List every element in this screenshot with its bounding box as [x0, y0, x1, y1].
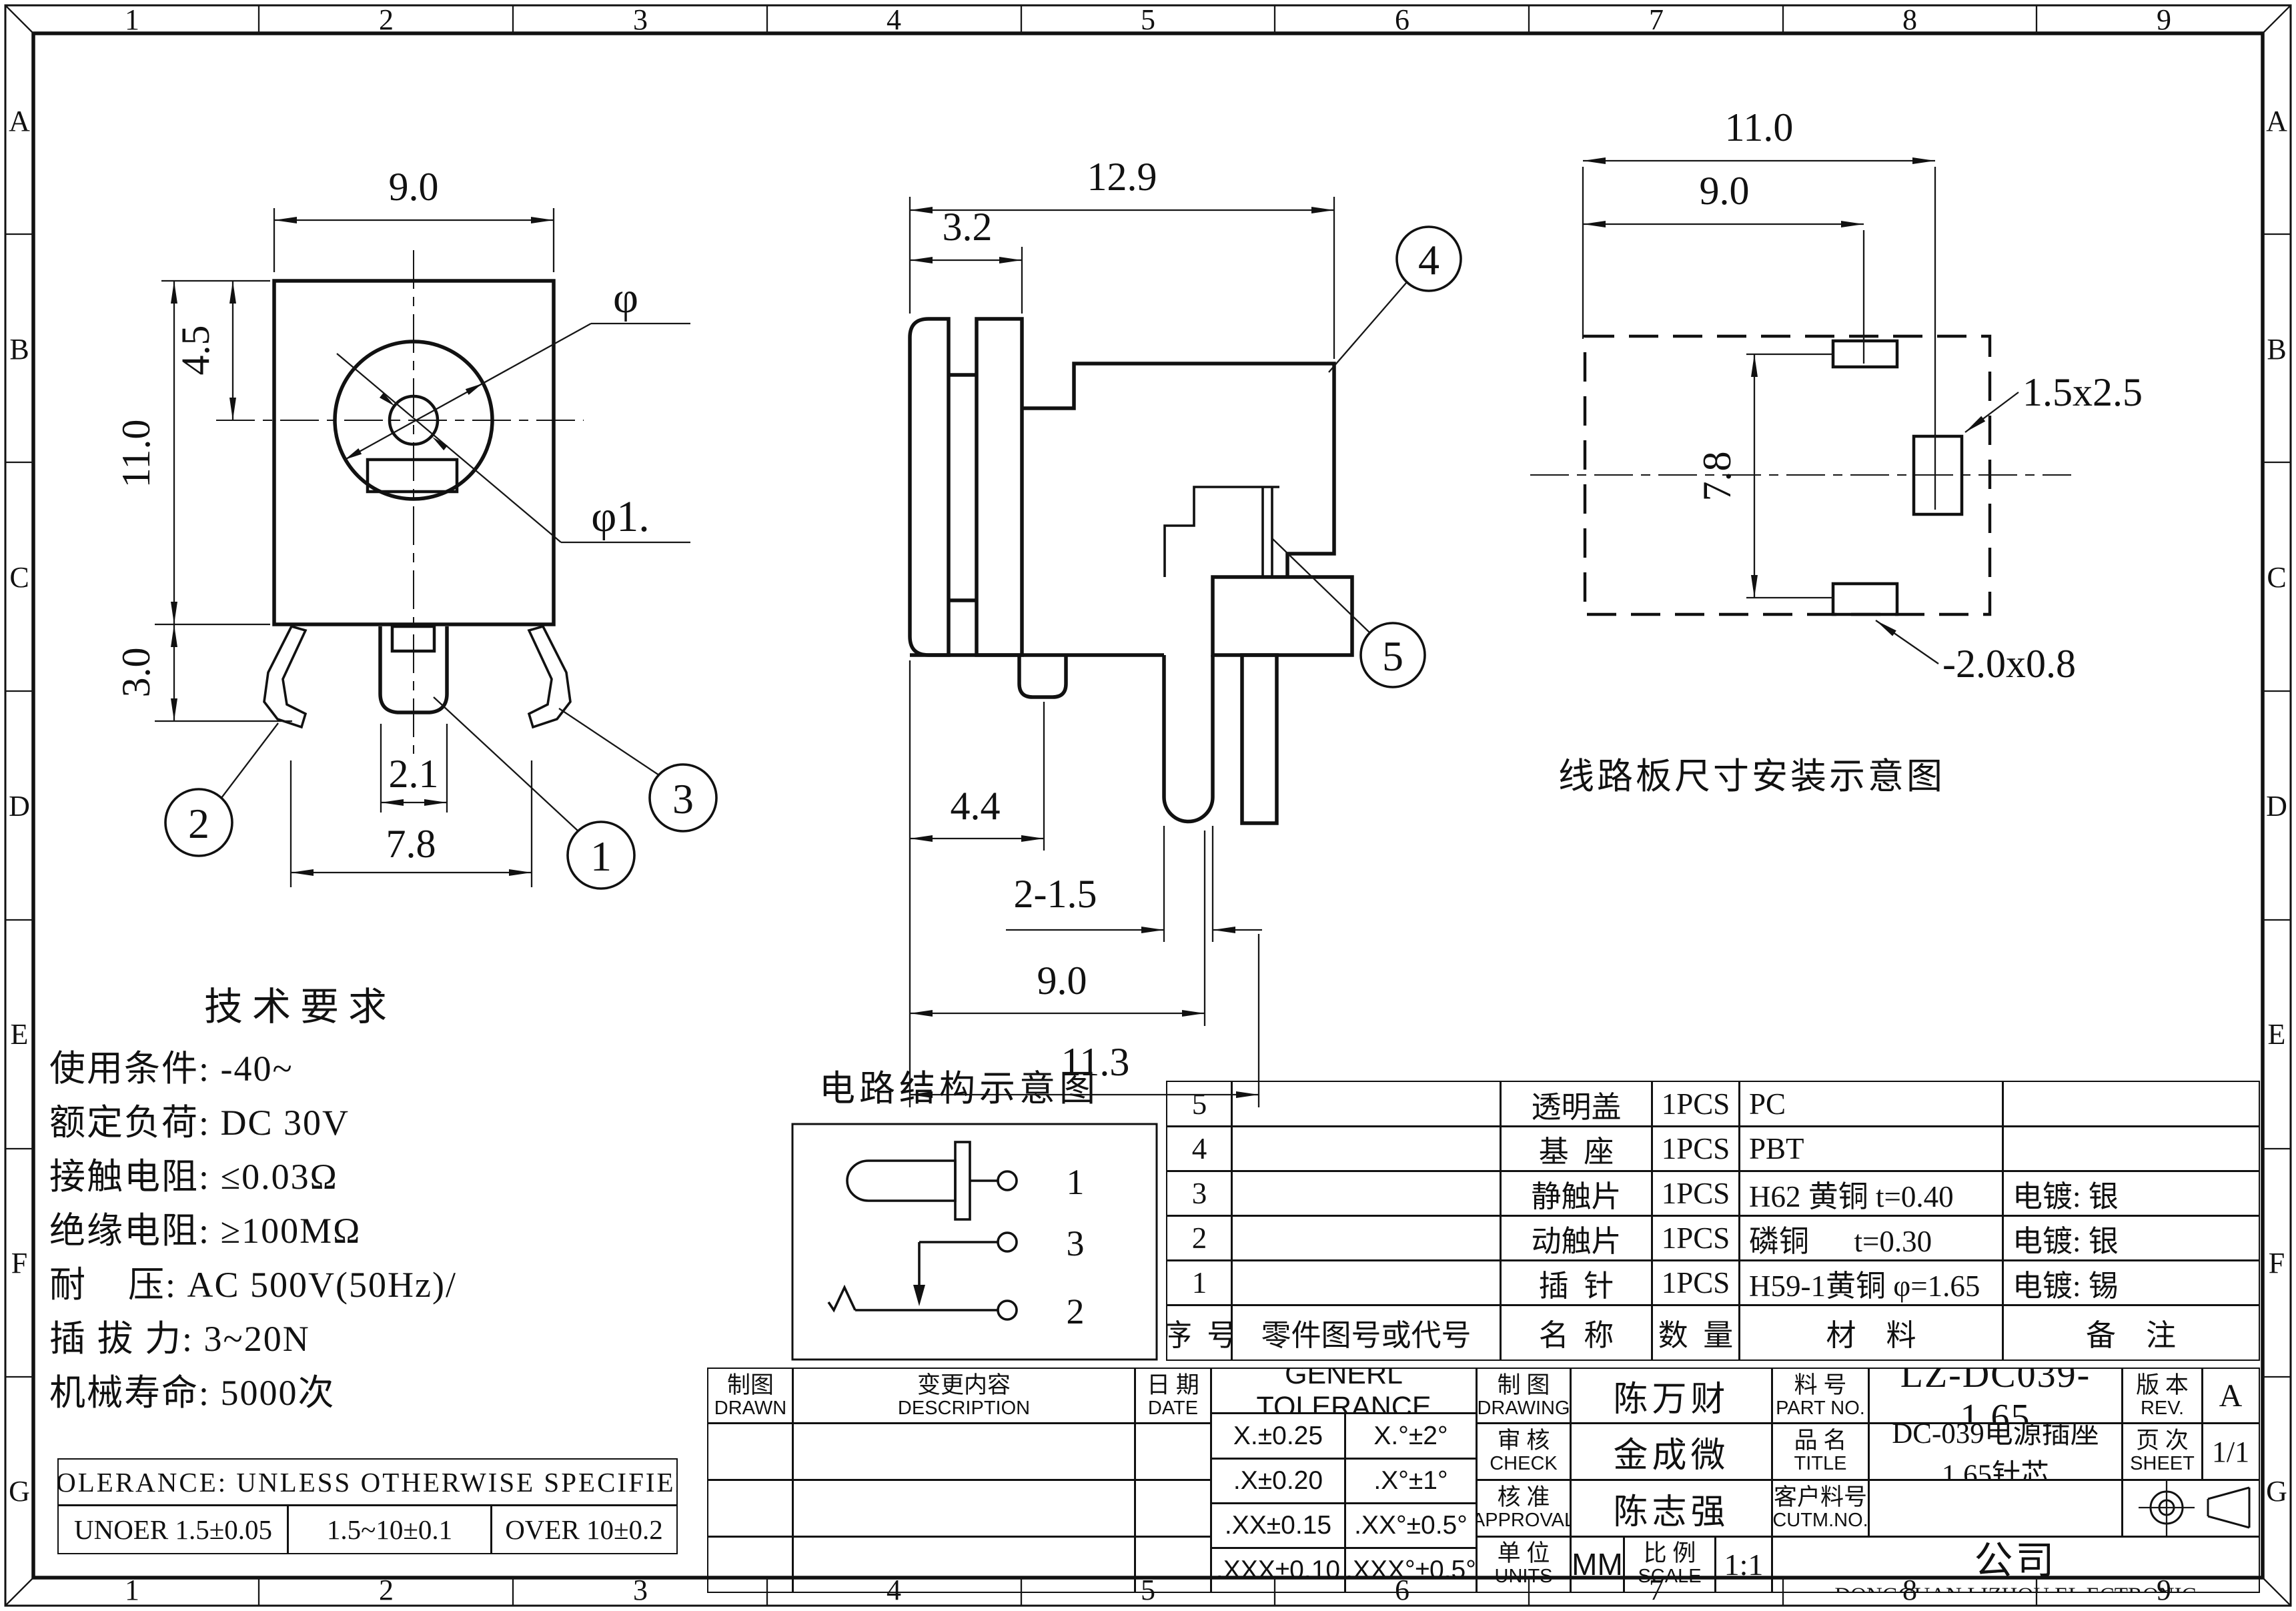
zone-row: A	[9, 105, 30, 137]
zone-row: E	[2268, 1018, 2286, 1051]
dim-front-height: 11.0	[114, 420, 158, 488]
customer-partno-label: 客户料号 CUTM.NO.	[1771, 1479, 1870, 1538]
scale-value: 1:1	[1714, 1536, 1773, 1593]
projection-symbol-cell	[2121, 1479, 2260, 1538]
drawn-label: 制图 DRAWN	[707, 1368, 794, 1424]
rev-label-en: REV.	[2141, 1398, 2184, 1419]
zone-row: C	[2267, 561, 2286, 594]
revision-cell	[1134, 1536, 1212, 1593]
drawing-sheet: 技术要求 使用条件: -40~ 额定负荷: DC 30V 接触电阻: ≤0.03…	[0, 0, 2296, 1611]
revision-cell	[707, 1536, 794, 1593]
company: 东莞市利洲电子科技有限公司 DONGGUAN LIZHOU EL ECTRONI…	[1771, 1536, 2260, 1593]
date-label: 日 期 DATE	[1134, 1368, 1212, 1424]
parts-qty: 1PCS	[1651, 1215, 1740, 1261]
zone-col: 8	[1902, 3, 1917, 36]
front-center-pin	[380, 626, 447, 712]
side-round-pin	[1164, 655, 1213, 822]
parts-name: 透明盖	[1500, 1081, 1653, 1127]
zone-col: 3	[633, 1574, 648, 1606]
front-dimensions: 9.0 4.5 11.0 3.0 2.1 7.8	[114, 165, 554, 887]
title-value: DC-039电源插座1.65针芯	[1868, 1422, 2123, 1481]
parts-material: PBT	[1738, 1125, 2004, 1172]
rev-label-cn: 版 本	[2136, 1373, 2189, 1398]
rev-label: 版 本 REV.	[2121, 1368, 2203, 1424]
parts-qty: 1PCS	[1651, 1081, 1740, 1127]
tolerance-value: X.±0.25	[1210, 1412, 1346, 1460]
check-label: 审 核 CHECK	[1476, 1422, 1572, 1481]
balloon-4: 4	[1418, 236, 1440, 284]
units-label: 单 位 UNITS	[1476, 1536, 1572, 1593]
front-balloons: 2 1 3	[165, 697, 716, 889]
rev-value: A	[2201, 1368, 2260, 1424]
tolerance-cell: 1.5~10±0.1	[287, 1504, 492, 1554]
drawing-label: 制 图 DRAWING	[1476, 1368, 1572, 1424]
sheet-label: 页 次 SHEET	[2121, 1422, 2203, 1481]
parts-header-note: 备 注	[2002, 1304, 2260, 1361]
circuit-title: 电路结构示意图	[819, 1069, 1099, 1109]
parts-no: 4	[1166, 1125, 1233, 1172]
tolerance-value: .XXX°±0.5°	[1344, 1547, 1478, 1593]
parts-note: 电镀: 银	[2002, 1170, 2260, 1217]
zone-col: 2	[379, 3, 394, 36]
general-tolerance-header: GENERL TOLERANCE	[1210, 1368, 1478, 1414]
parts-code	[1231, 1259, 1502, 1306]
parts-material: H59-1黄铜 φ=1.65	[1738, 1259, 2004, 1306]
zone-row: A	[2266, 105, 2287, 137]
revision-cell	[792, 1536, 1136, 1593]
zone-col: 2	[379, 1574, 394, 1606]
zone-col: 6	[1395, 3, 1409, 36]
tolerance-value: X.°±2°	[1344, 1412, 1478, 1460]
check-label-en: CHECK	[1490, 1454, 1558, 1474]
zone-col: 9	[2157, 3, 2171, 36]
zone-row: D	[2266, 790, 2287, 823]
label-phi: φ	[613, 274, 638, 322]
parts-name: 基 座	[1500, 1125, 1653, 1172]
tech-req-line: 插 拔 力: 3~20N	[49, 1309, 556, 1362]
tolerance-cell: UNOER 1.5±0.05	[57, 1504, 289, 1554]
dim-side-pins: 2-1.5	[1014, 872, 1097, 916]
pcb-right-slot	[1914, 436, 1962, 514]
pcb-dimensions: 11.0 9.0 7.8 1.5x2.5 -2.0x0.8	[1583, 105, 2143, 686]
circuit-diagram: 电路结构示意图 1 3 2	[792, 1069, 1157, 1360]
units-value: MM	[1570, 1536, 1625, 1593]
parts-header-no: 序 号	[1166, 1304, 1233, 1361]
parts-header-code: 零件图号或代号	[1231, 1304, 1502, 1361]
front-view: 9.0 4.5 11.0 3.0 2.1 7.8	[114, 165, 716, 889]
zone-row: F	[11, 1247, 27, 1279]
tech-req-line: 接触电阻: ≤0.03Ω	[49, 1147, 556, 1199]
parts-note	[2002, 1125, 2260, 1172]
front-diameter-callouts: φ φ1.	[337, 274, 690, 542]
parts-material: PC	[1738, 1081, 2004, 1127]
drawn-label-en: DRAWN	[714, 1398, 786, 1419]
approval-label: 核 准 APPROVAL	[1476, 1479, 1572, 1538]
drawing-name: 陈万财	[1570, 1368, 1773, 1424]
dim-side-width: 12.9	[1087, 155, 1157, 199]
balloon-1: 1	[590, 833, 612, 880]
revision-cell	[1134, 1422, 1212, 1481]
parts-name: 静触片	[1500, 1170, 1653, 1217]
parts-material: H62 黄铜 t=0.40	[1738, 1170, 2004, 1217]
balloon-3: 3	[672, 775, 694, 823]
dim-side-span: 9.0	[1037, 959, 1087, 1003]
dim-pcb-inner: 9.0	[1700, 169, 1750, 213]
dim-front-span: 7.8	[386, 822, 436, 866]
zone-col: 1	[125, 1574, 139, 1606]
parts-code	[1231, 1125, 1502, 1172]
pcb-caption: 线路板尺寸安装示意图	[1558, 756, 1945, 796]
revision-cell	[707, 1422, 794, 1481]
units-label-en: UNITS	[1495, 1566, 1553, 1587]
zone-col: 7	[1649, 3, 1664, 36]
parts-material: 磷铜 t=0.30	[1738, 1215, 2004, 1261]
tolerance-title: TOLERANCE: UNLESS OTHERWISE SPECIFIED	[57, 1458, 678, 1506]
parts-no: 1	[1166, 1259, 1233, 1306]
circuit-terminal-3: 3	[1067, 1223, 1085, 1263]
tech-req-line: 使用条件: -40~	[49, 1039, 556, 1091]
customer-partno-cn: 客户料号	[1774, 1485, 1867, 1510]
tolerance-value: .X±0.20	[1210, 1458, 1346, 1504]
approval-label-en: APPROVAL	[1476, 1510, 1572, 1531]
parts-name: 动触片	[1500, 1215, 1653, 1261]
revision-cell	[792, 1479, 1136, 1538]
front-left-leg	[264, 626, 306, 727]
label-phi1: φ1.	[591, 492, 650, 541]
tech-req-line: 额定负荷: DC 30V	[49, 1093, 556, 1145]
zone-row: B	[9, 333, 29, 366]
zone-row: F	[2269, 1247, 2285, 1279]
parts-qty: 1PCS	[1651, 1170, 1740, 1217]
dim-side-total: 11.3	[1061, 1040, 1130, 1084]
units-label-cn: 单 位	[1498, 1541, 1550, 1566]
description-label-cn: 变更内容	[917, 1373, 1011, 1398]
side-flat-pin	[1242, 655, 1277, 823]
description-label-en: DESCRIPTION	[898, 1398, 1030, 1419]
scale-label-cn: 比 例	[1644, 1541, 1696, 1566]
dim-side-flange: 3.2	[943, 205, 993, 249]
partno-value: LZ-DC039-1.65	[1868, 1368, 2123, 1424]
label-slot-bottom: -2.0x0.8	[1942, 642, 2076, 686]
side-tab	[1019, 655, 1066, 697]
tech-req-line: 机械寿命: 5000次	[49, 1363, 556, 1416]
balloon-2: 2	[188, 800, 209, 847]
zone-row: D	[9, 790, 30, 823]
dim-front-width: 9.0	[389, 165, 439, 209]
dim-front-leg: 3.0	[114, 648, 158, 698]
sheet-label-en: SHEET	[2130, 1454, 2195, 1474]
customer-partno-en: CUTM.NO.	[1772, 1510, 1868, 1531]
pcb-top-slot	[1833, 341, 1897, 367]
balloon-5: 5	[1382, 632, 1403, 680]
partno-label-cn: 料 号	[1794, 1373, 1847, 1398]
parts-name: 插 针	[1500, 1259, 1653, 1306]
revision-cell	[707, 1479, 794, 1538]
title-label-en: TITLE	[1794, 1454, 1847, 1474]
dim-front-center: 4.5	[173, 326, 217, 376]
circuit-terminal-2: 2	[1067, 1291, 1085, 1331]
zone-row: C	[9, 561, 29, 594]
tolerance-value: .XX±0.15	[1210, 1502, 1346, 1549]
label-slot-right: 1.5x2.5	[2023, 370, 2143, 414]
check-name: 金成微	[1570, 1422, 1773, 1481]
circuit-terminal-1: 1	[1067, 1162, 1085, 1202]
parts-qty: 1PCS	[1651, 1259, 1740, 1306]
tech-req-line: 耐 压: AC 500V(50Hz)/	[49, 1255, 556, 1307]
revision-cell	[792, 1422, 1136, 1481]
title-label-cn: 品 名	[1794, 1428, 1847, 1454]
scale-label: 比 例 SCALE	[1623, 1536, 1716, 1593]
tech-req-title: 技术要求	[113, 975, 487, 1031]
parts-header-qty: 数 量	[1651, 1304, 1740, 1361]
date-label-cn: 日 期	[1147, 1373, 1199, 1398]
dim-pcb-width: 11.0	[1725, 105, 1794, 149]
tolerance-cell: OVER 10±0.2	[490, 1504, 678, 1554]
title-label: 品 名 TITLE	[1771, 1422, 1870, 1481]
revision-cell	[1134, 1479, 1212, 1538]
zone-col: 5	[1141, 3, 1155, 36]
zone-col: 4	[887, 3, 901, 36]
scale-label-en: SCALE	[1638, 1566, 1701, 1587]
tolerance-value: .XXX±0.10	[1210, 1547, 1346, 1593]
partno-label: 料 号 PART NO.	[1771, 1368, 1870, 1424]
parts-code	[1231, 1170, 1502, 1217]
drawing-label-en: DRAWING	[1477, 1398, 1570, 1419]
sheet-value: 1/1	[2201, 1422, 2260, 1481]
zone-col: 3	[633, 3, 648, 36]
pcb-view: 11.0 9.0 7.8 1.5x2.5 -2.0x0.8 线路板尺寸安装示意图	[1530, 105, 2143, 796]
date-label-en: DATE	[1148, 1398, 1198, 1419]
zone-row: B	[2267, 333, 2286, 366]
zone-row: E	[11, 1018, 29, 1051]
side-balloons: 4 5	[1273, 227, 1461, 687]
parts-code	[1231, 1215, 1502, 1261]
parts-no: 3	[1166, 1170, 1233, 1217]
parts-no: 2	[1166, 1215, 1233, 1261]
parts-code	[1231, 1081, 1502, 1127]
pcb-bottom-slot	[1833, 584, 1897, 614]
parts-header-name: 名 称	[1500, 1304, 1653, 1361]
parts-header-material: 材 料	[1738, 1304, 2004, 1361]
dim-pcb-height: 7.8	[1695, 452, 1739, 502]
customer-partno-value	[1868, 1479, 2123, 1538]
drawing-label-cn: 制 图	[1498, 1373, 1550, 1398]
approval-name: 陈志强	[1570, 1479, 1773, 1538]
parts-qty: 1PCS	[1651, 1125, 1740, 1172]
zone-row: G	[2266, 1475, 2287, 1508]
zone-col: 1	[125, 3, 139, 36]
parts-note	[2002, 1081, 2260, 1127]
parts-note: 电镀: 锡	[2002, 1259, 2260, 1306]
zone-row: G	[9, 1475, 30, 1508]
check-label-cn: 审 核	[1498, 1428, 1550, 1454]
side-view: 12.9 3.2 4.4 2-1.5 9.0 11.3	[910, 155, 1461, 1107]
tolerance-value: .XX°±0.5°	[1344, 1502, 1478, 1549]
circuit-plug-symbol	[847, 1161, 955, 1201]
dim-front-pin: 2.1	[389, 752, 439, 796]
tolerance-value: .X°±1°	[1344, 1458, 1478, 1504]
dim-side-tab: 4.4	[951, 784, 1001, 828]
tech-req-line: 绝缘电阻: ≥100MΩ	[49, 1201, 556, 1253]
company-name-en: DONGGUAN LIZHOU EL ECTRONIC TECHNOLOGY C…	[1772, 1584, 2259, 1593]
side-dimensions: 12.9 3.2 4.4 2-1.5 9.0 11.3	[910, 155, 1334, 1107]
parts-no: 5	[1166, 1081, 1233, 1127]
sheet-label-cn: 页 次	[2136, 1428, 2189, 1454]
parts-note: 电镀: 银	[2002, 1215, 2260, 1261]
drawn-label-cn: 制图	[727, 1373, 774, 1398]
front-right-leg	[529, 626, 570, 727]
partno-label-en: PART NO.	[1776, 1398, 1865, 1419]
description-label: 变更内容 DESCRIPTION	[792, 1368, 1136, 1424]
company-name-cn: 东莞市利洲电子科技有限公司	[1772, 1536, 2259, 1584]
approval-label-cn: 核 准	[1498, 1485, 1550, 1510]
